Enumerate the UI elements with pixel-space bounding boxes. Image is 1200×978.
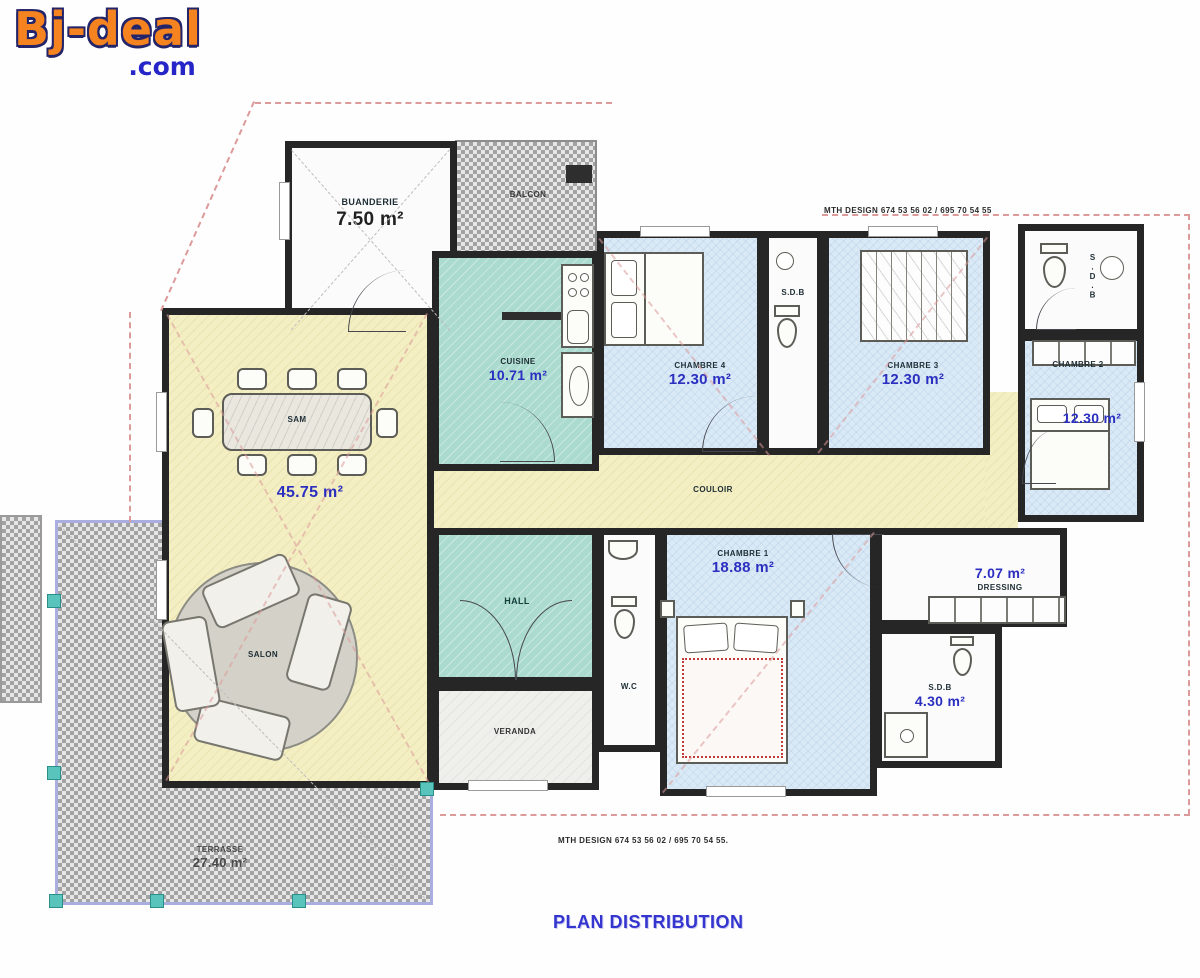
label-chambre2-area: 12.30 m² (1046, 410, 1138, 428)
shower-head-sdb1 (776, 252, 794, 270)
room-name: S.D.B (770, 288, 816, 298)
label-balcon: BALCON (478, 190, 578, 200)
roof-dash-line (129, 312, 131, 522)
room-name: TERRASSE (150, 845, 290, 855)
terrasse-column (420, 782, 434, 796)
window-mark (706, 786, 786, 797)
dining-table: SAM (222, 393, 372, 451)
label-hall: HALL (472, 596, 562, 607)
pillow (611, 260, 637, 296)
room-name: HALL (472, 596, 562, 607)
dining-chair (337, 454, 367, 476)
label-cuisine: CUISINE 10.71 m² (458, 357, 578, 385)
dining-chair (337, 368, 367, 390)
label-sdb1: S.D.B (770, 288, 816, 298)
room-name: DRESSING (940, 583, 1060, 593)
closet-dressing (928, 596, 1066, 624)
wardrobe-chambre3 (860, 250, 968, 342)
room-name: BALCON (478, 190, 578, 200)
sink-sdb2 (1100, 256, 1124, 280)
label-salon-area: 45.75 m² (250, 483, 370, 503)
room-name: COULOIR (658, 485, 768, 495)
burner (580, 288, 589, 297)
room-veranda (432, 684, 599, 790)
room-wc (597, 528, 662, 752)
window-mark (156, 560, 167, 620)
nightstand (660, 600, 675, 618)
dining-chair (237, 454, 267, 476)
window-mark (868, 226, 938, 237)
room-name: BUANDERIE (300, 197, 440, 208)
label-wc: W.C (604, 682, 654, 692)
room-name: CUISINE (458, 357, 578, 367)
room-area: 18.88 m² (678, 559, 808, 578)
bed-chambre4 (604, 252, 704, 346)
wc-sink (608, 540, 638, 560)
pillow (611, 302, 637, 338)
room-area: 12.30 m² (640, 371, 760, 390)
toilet-tank-sdb2 (1040, 243, 1068, 254)
table-label: SAM (224, 415, 370, 424)
nightstand (790, 600, 805, 618)
terrasse-column (47, 594, 61, 608)
burner (568, 273, 577, 282)
wc-toilet-tank (611, 596, 637, 607)
label-veranda: VERANDA (470, 727, 560, 737)
roof-dash-line (160, 101, 255, 311)
room-area: 27.40 m² (150, 855, 290, 871)
site-logo: Bj-deal .com (14, 6, 202, 79)
room-name: S.D.B (1088, 253, 1097, 300)
label-chambre3: CHAMBRE 3 12.30 m² (853, 361, 973, 390)
pillow (683, 622, 729, 653)
room-name: CHAMBRE 2 (1022, 360, 1134, 370)
label-buanderie: BUANDERIE 7.50 m² (300, 197, 440, 232)
oven-door (567, 310, 589, 344)
room-name: CHAMBRE 4 (640, 361, 760, 371)
roof-dash-line (1188, 214, 1190, 815)
label-chambre1: CHAMBRE 1 18.88 m² (678, 549, 808, 578)
floor-plan-page: Bj-deal .com MTH DESIGN 674 53 56 02 / 6… (0, 0, 1200, 978)
balcon-pillar (566, 165, 592, 183)
label-chambre2-name: CHAMBRE 2 (1022, 360, 1134, 370)
terrasse-column (292, 894, 306, 908)
label-couloir: COULOIR (658, 485, 768, 495)
bed-line (1032, 430, 1108, 432)
shower-sdb3 (884, 712, 928, 758)
window-mark (468, 780, 548, 791)
window-mark (640, 226, 710, 237)
window-mark (156, 392, 167, 452)
room-area: 12.30 m² (1046, 410, 1138, 428)
room-area: 4.30 m² (902, 693, 978, 711)
toilet-tank-sdb1 (774, 305, 800, 317)
dining-chair (192, 408, 214, 438)
duvet-chambre1 (682, 658, 783, 758)
label-chambre4: CHAMBRE 4 12.30 m² (640, 361, 760, 390)
logo-brand-text: Bj-deal (14, 2, 202, 56)
label-dressing: 7.07 m² DRESSING (940, 565, 1060, 593)
room-name: W.C (604, 682, 654, 692)
room-name: S.D.B (902, 683, 978, 693)
room-area: 12.30 m² (853, 371, 973, 390)
dining-chair (287, 454, 317, 476)
terrasse-column (49, 894, 63, 908)
stove (561, 264, 594, 348)
dining-chair (287, 368, 317, 390)
pillow (733, 622, 779, 653)
dining-chair (237, 368, 267, 390)
window-mark (279, 182, 290, 240)
roof-dash-line (440, 814, 1190, 816)
room-area: 10.71 m² (458, 367, 578, 385)
room-name: CHAMBRE 3 (853, 361, 973, 371)
designer-credit-top: MTH DESIGN 674 53 56 02 / 695 70 54 55 (824, 206, 992, 215)
side-slab (0, 515, 42, 703)
burner (580, 273, 589, 282)
label-terrasse: TERRASSE 27.40 m² (150, 845, 290, 871)
toilet-tank-sdb3 (950, 636, 974, 646)
room-area: 45.75 m² (250, 483, 370, 503)
room-name: CHAMBRE 1 (678, 549, 808, 559)
room-area: 7.50 m² (300, 208, 440, 232)
logo-tld-text: .com (14, 54, 196, 79)
dining-chair (376, 408, 398, 438)
terrasse-column (150, 894, 164, 908)
bed-line (644, 254, 646, 344)
shower-drain (900, 729, 914, 743)
burner (568, 288, 577, 297)
designer-credit-bottom: MTH DESIGN 674 53 56 02 / 695 70 54 55. (558, 836, 728, 845)
roof-dash-line (255, 102, 612, 104)
room-area: 7.07 m² (940, 565, 1060, 583)
room-name: VERANDA (470, 727, 560, 737)
plan-title: PLAN DISTRIBUTION (553, 912, 744, 933)
label-sdb3: S.D.B 4.30 m² (902, 683, 978, 711)
terrasse-column (47, 766, 61, 780)
label-sdb2: S.D.B (1082, 246, 1102, 306)
